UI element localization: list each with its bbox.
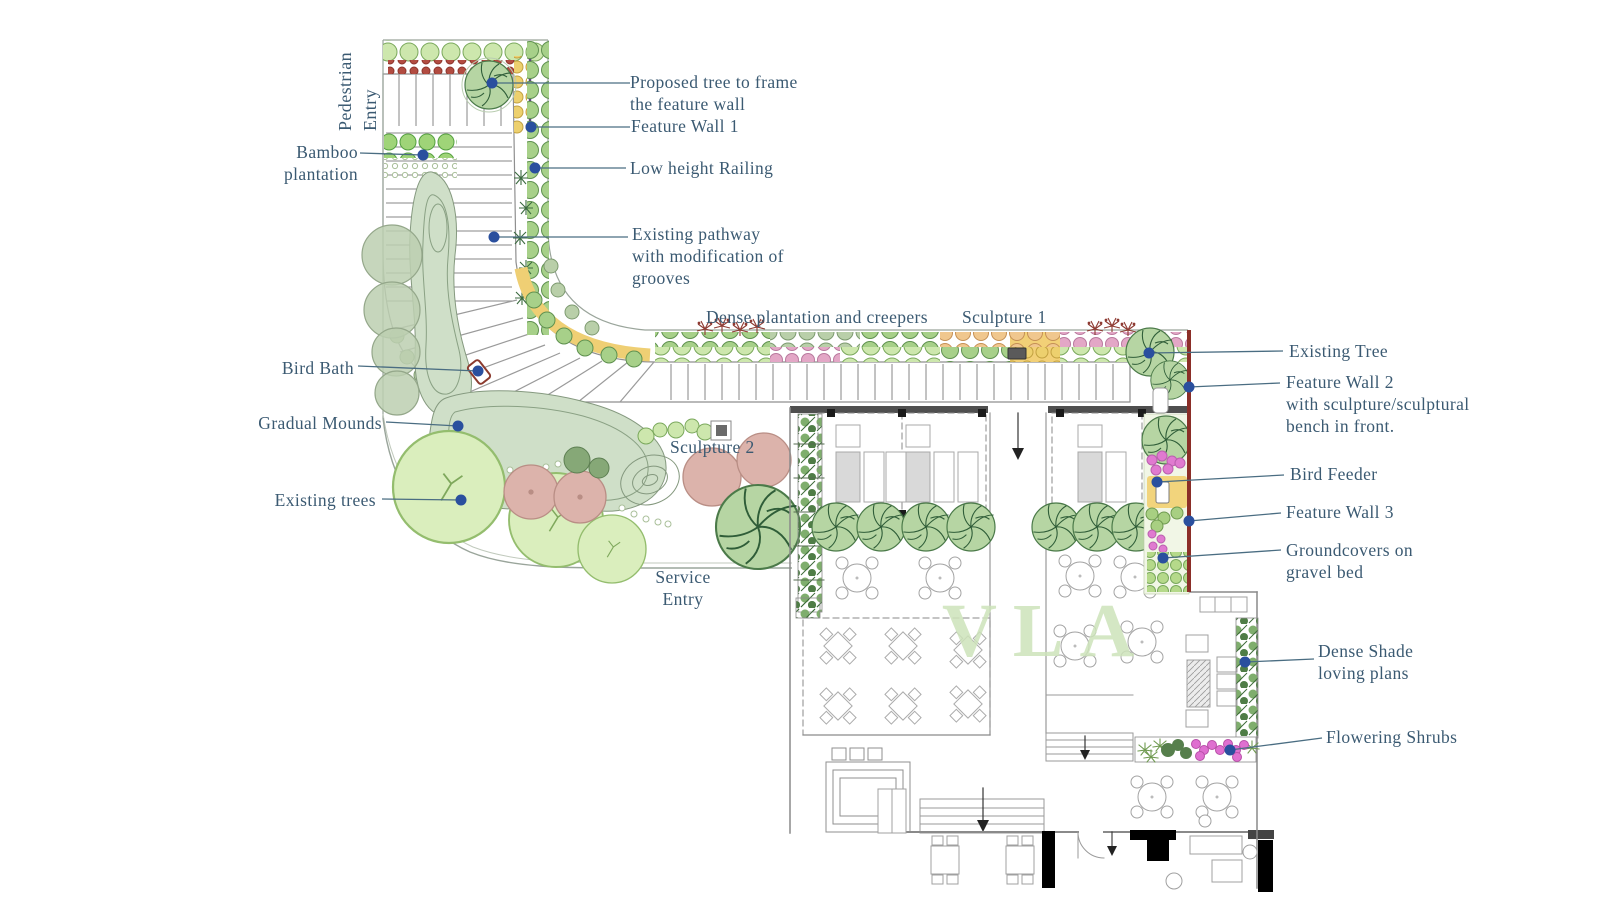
site-plan-drawing — [0, 0, 1600, 900]
dense-shade-strip — [1236, 618, 1258, 738]
flowering-shrubs-strip — [1135, 737, 1259, 762]
courtyard-tree-row — [812, 503, 1160, 551]
sculptural-bench-symbol — [1153, 388, 1168, 413]
label-text-line: Low height Railing — [630, 157, 773, 179]
label-text-line: Bird Feeder — [1290, 463, 1378, 485]
label-text-line: Service — [640, 566, 726, 588]
label-text-line: Sculpture 1 — [962, 306, 1047, 328]
label-text-line: Proposed tree to frame — [630, 71, 798, 93]
label-text-line: with sculpture/sculptural — [1286, 393, 1470, 415]
label-text-line: Gradual Mounds — [258, 412, 382, 434]
label-service-entry: Service Entry — [640, 566, 726, 610]
label-text-line: Sculpture 2 — [670, 436, 755, 458]
existing-tree-1 — [393, 431, 505, 543]
sage-tree-row — [362, 225, 422, 415]
label-proposed-tree: Proposed tree to frame the feature wall — [630, 71, 798, 115]
label-sculpture-1: Sculpture 1 — [962, 306, 1047, 328]
label-bird-bath: Bird Bath — [282, 357, 354, 379]
label-text-line: Groundcovers on — [1286, 539, 1413, 561]
watermark-logo: VLA — [942, 588, 1150, 675]
label-text-line: Existing trees — [275, 489, 376, 511]
stairs-right — [1046, 733, 1133, 761]
label-existing-pathway: Existing pathway with modification of gr… — [632, 223, 784, 289]
label-existing-tree: Existing Tree — [1289, 340, 1388, 362]
label-text-line: loving plans — [1318, 662, 1413, 684]
label-flowering-shrubs: Flowering Shrubs — [1326, 726, 1457, 748]
label-text-line: Flowering Shrubs — [1326, 726, 1457, 748]
label-text-line: grooves — [632, 267, 784, 289]
label-feature-wall-2: Feature Wall 2 with sculpture/sculptural… — [1286, 371, 1470, 437]
label-text-line: Existing pathway — [632, 223, 784, 245]
label-gradual-mounds: Gradual Mounds — [258, 412, 382, 434]
label-text-line: Dense Shade — [1318, 640, 1413, 662]
label-text-line: Bird Bath — [282, 357, 354, 379]
label-feature-wall-3: Feature Wall 3 — [1286, 501, 1394, 523]
label-pedestrian-entry: Pedestrian Entry — [333, 52, 383, 131]
stairs-main — [920, 788, 1044, 833]
label-bird-feeder: Bird Feeder — [1290, 463, 1378, 485]
label-text-line: Entry — [358, 52, 383, 131]
label-sculpture-2: Sculpture 2 — [670, 436, 755, 458]
label-text-line: Entry — [640, 588, 726, 610]
sculpture-1-symbol — [1008, 348, 1026, 359]
label-text-line: gravel bed — [1286, 561, 1413, 583]
label-low-height-railing: Low height Railing — [630, 157, 773, 179]
existing-tree-3 — [578, 515, 646, 583]
label-text-line: Feature Wall 3 — [1286, 501, 1394, 523]
landscape-plan-page: Pedestrian Entry Proposed tree to frame … — [0, 0, 1600, 900]
label-feature-wall-1: Feature Wall 1 — [631, 115, 739, 137]
label-text-line: bench in front. — [1286, 415, 1470, 437]
service-entry-big-tree — [716, 485, 800, 569]
label-text-line: with modification of — [632, 245, 784, 267]
pathway-steps-horizontal-arm — [658, 364, 1130, 400]
label-dense-shade: Dense Shade loving plans — [1318, 640, 1413, 684]
label-text-line: Dense plantation and creepers — [706, 306, 928, 328]
label-text-line: Bamboo — [284, 141, 358, 163]
terrace-tables — [836, 425, 1126, 502]
label-existing-trees: Existing trees — [275, 489, 376, 511]
label-text-line: Feature Wall 2 — [1286, 371, 1470, 393]
entry-arrow — [1012, 448, 1024, 460]
label-text-line: plantation — [284, 163, 358, 185]
label-text-line: the feature wall — [630, 93, 798, 115]
label-dense-plantation: Dense plantation and creepers — [706, 306, 928, 328]
feature-wall-strip — [1126, 328, 1190, 594]
label-bamboo-plantation: Bamboo plantation — [284, 141, 358, 185]
label-text-line: Feature Wall 1 — [631, 115, 739, 137]
label-text-line: Pedestrian — [333, 52, 358, 131]
label-text-line: Existing Tree — [1289, 340, 1388, 362]
label-groundcovers: Groundcovers on gravel bed — [1286, 539, 1413, 583]
bottom-tables — [878, 789, 1034, 884]
